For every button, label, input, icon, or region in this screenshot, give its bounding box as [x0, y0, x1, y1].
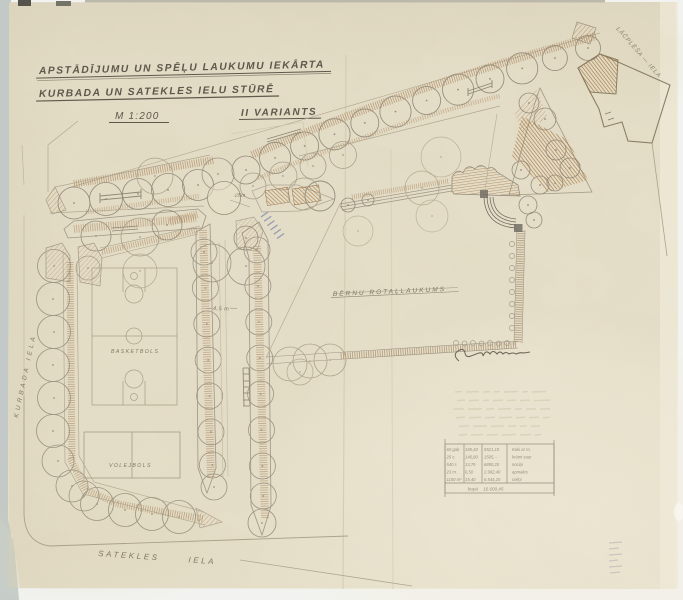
svg-text:nociņi: nociņi — [512, 462, 524, 467]
svg-text:BASKETBOLS: BASKETBOLS — [111, 349, 159, 355]
svg-text:1150 m²: 1150 m² — [447, 477, 463, 482]
svg-text:Koki ar m.: Koki ar m. — [512, 447, 531, 452]
svg-text:185,40: 185,40 — [465, 447, 478, 452]
svg-text:60 gab: 60 gab — [447, 447, 460, 452]
svg-text:celiņi: celiņi — [512, 477, 523, 482]
svg-text:23 m.: 23 m. — [446, 470, 457, 475]
svg-text:kopā 16.600,45: kopā 16.600,45 — [468, 487, 504, 492]
svg-text:6,50: 6,50 — [465, 470, 474, 475]
svg-text:146,80: 146,80 — [465, 455, 478, 460]
svg-text:krūmi saur: krūmi saur — [512, 455, 532, 460]
svg-text:13,75: 13,75 — [465, 462, 476, 467]
svg-text:15,40: 15,40 — [465, 477, 476, 482]
svg-text:∅5m: ∅5m — [234, 193, 245, 199]
svg-text:25 c.: 25 c. — [446, 455, 456, 460]
svg-text:II VARIANTS: II VARIANTS — [241, 107, 317, 119]
svg-text:6890,20: 6890,20 — [484, 462, 500, 467]
svg-text:6.544,20: 6.544,20 — [484, 477, 501, 482]
svg-text:apmales: apmales — [512, 470, 529, 475]
svg-text:4,5 m: 4,5 m — [213, 306, 229, 313]
svg-text:540 c: 540 c — [447, 462, 458, 467]
svg-text:2.982,40: 2.982,40 — [483, 470, 501, 475]
svg-text:5521,10: 5521,10 — [484, 447, 500, 452]
svg-text:M 1:200: M 1:200 — [115, 111, 160, 122]
svg-text:1505,--: 1505,-- — [484, 455, 498, 460]
svg-text:VOLEJBOLS: VOLEJBOLS — [109, 463, 152, 469]
